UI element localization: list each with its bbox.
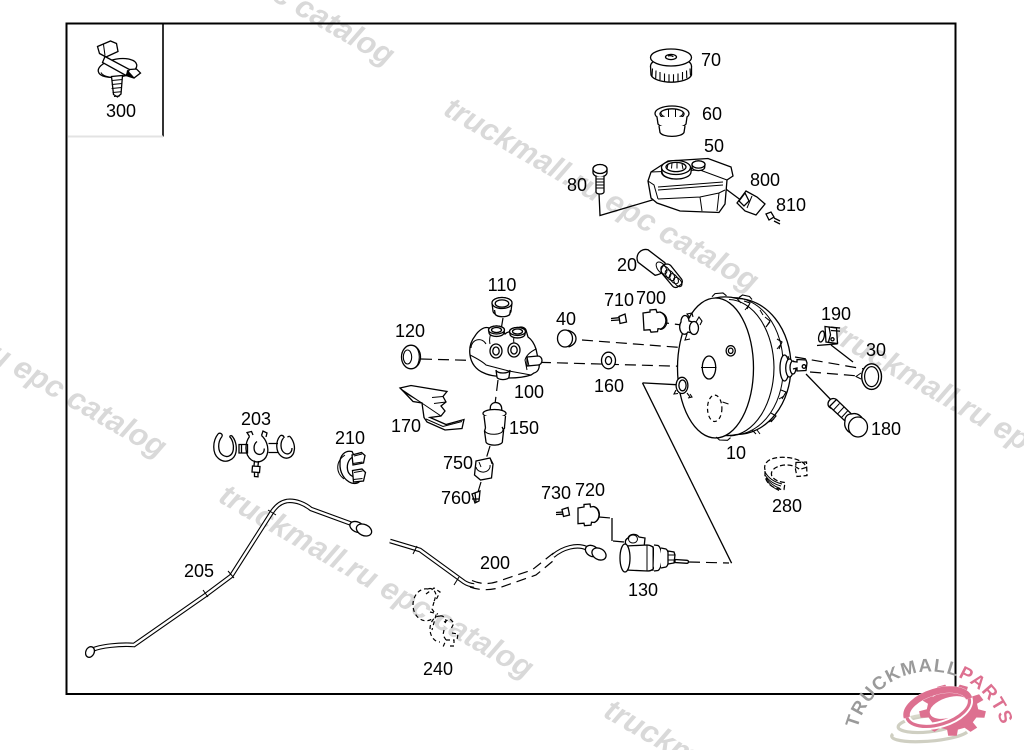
svg-text:180: 180 bbox=[871, 419, 901, 439]
svg-text:700: 700 bbox=[636, 288, 666, 308]
svg-text:300: 300 bbox=[106, 101, 136, 121]
svg-text:750: 750 bbox=[443, 453, 473, 473]
svg-text:203: 203 bbox=[241, 409, 271, 429]
svg-text:710: 710 bbox=[604, 290, 634, 310]
svg-text:200: 200 bbox=[480, 553, 510, 573]
svg-text:280: 280 bbox=[772, 496, 802, 516]
svg-text:70: 70 bbox=[701, 50, 721, 70]
svg-text:10: 10 bbox=[726, 443, 746, 463]
svg-text:720: 720 bbox=[575, 480, 605, 500]
svg-text:240: 240 bbox=[423, 659, 453, 679]
svg-text:110: 110 bbox=[488, 275, 517, 295]
svg-text:205: 205 bbox=[184, 561, 214, 581]
svg-text:150: 150 bbox=[509, 418, 539, 438]
svg-text:120: 120 bbox=[395, 321, 425, 341]
svg-text:190: 190 bbox=[821, 304, 851, 324]
svg-text:810: 810 bbox=[776, 195, 806, 215]
svg-text:40: 40 bbox=[556, 309, 576, 329]
svg-text:760: 760 bbox=[441, 488, 471, 508]
svg-text:50: 50 bbox=[704, 136, 724, 156]
svg-text:170: 170 bbox=[391, 416, 421, 436]
svg-text:80: 80 bbox=[567, 175, 587, 195]
svg-text:60: 60 bbox=[702, 104, 722, 124]
svg-text:800: 800 bbox=[750, 170, 780, 190]
svg-text:160: 160 bbox=[594, 376, 624, 396]
svg-text:20: 20 bbox=[617, 255, 637, 275]
svg-text:100: 100 bbox=[514, 382, 544, 402]
svg-text:30: 30 bbox=[866, 340, 886, 360]
svg-text:730: 730 bbox=[541, 483, 571, 503]
svg-text:210: 210 bbox=[335, 428, 365, 448]
svg-text:130: 130 bbox=[628, 580, 658, 600]
